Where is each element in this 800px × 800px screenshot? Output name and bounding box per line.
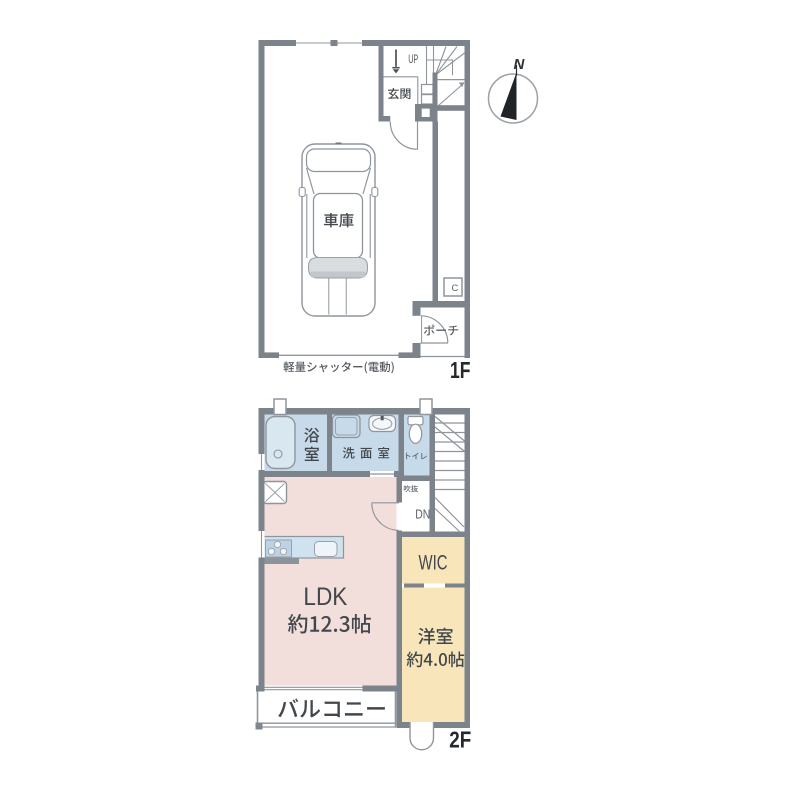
svg-text:LDK: LDK <box>303 583 347 611</box>
svg-text:WIC: WIC <box>419 551 448 575</box>
svg-text:UP: UP <box>408 54 418 66</box>
svg-text:1F: 1F <box>450 357 471 383</box>
svg-text:C: C <box>452 283 459 294</box>
svg-text:N: N <box>514 56 526 73</box>
svg-text:DN: DN <box>415 507 430 522</box>
svg-text:2F: 2F <box>449 726 471 752</box>
